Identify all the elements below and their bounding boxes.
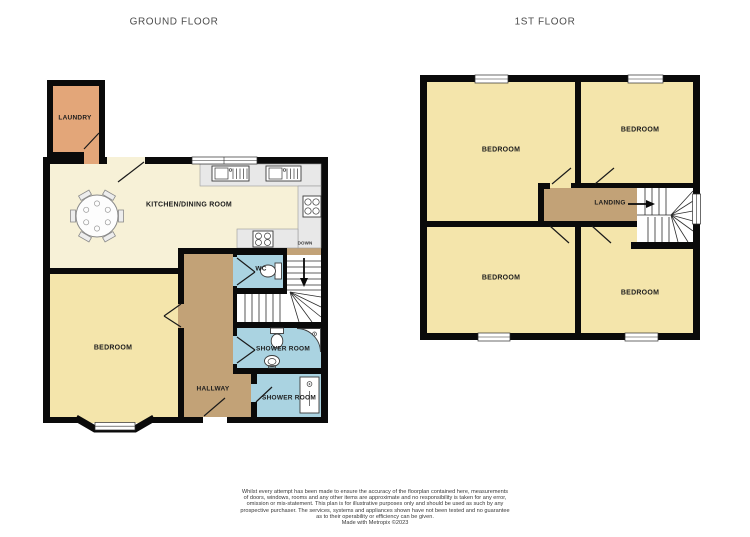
sink-icon — [212, 166, 249, 181]
disclaimer: Whilst every attempt has been made to en… — [0, 489, 750, 526]
laundry-door-gap — [84, 150, 99, 164]
shower2-door-gap — [251, 384, 257, 402]
first-floor-plan — [420, 75, 701, 341]
wc-door-gap — [233, 257, 237, 286]
floorplan-drawing — [0, 0, 750, 537]
label-down: DOWN — [298, 241, 313, 246]
hallway-floor-lower — [233, 374, 251, 417]
label-wc: WC — [255, 266, 266, 273]
title-ground-floor: GROUND FLOOR — [130, 17, 219, 28]
label-ff-bedroom-br: BEDROOM — [621, 290, 659, 297]
kitchen-window — [192, 157, 257, 164]
gf-stairs-top-strip — [287, 248, 321, 255]
label-kitchen-dining: KITCHEN/DINING ROOM — [146, 202, 232, 209]
shower1-door-gap — [233, 336, 237, 364]
front-door-gap — [203, 417, 227, 423]
floorplan-page: GROUND FLOOR 1ST FLOOR LAUNDRY KITCHEN/D… — [0, 0, 750, 537]
label-shower-room-1: SHOWER ROOM — [256, 346, 310, 353]
title-first-floor: 1ST FLOOR — [515, 17, 576, 28]
label-laundry: LAUNDRY — [58, 115, 91, 122]
disclaimer-credit: Made with Metropix ©2023 — [0, 520, 750, 526]
ground-floor-plan — [43, 80, 328, 430]
kitchen-entry-gap — [107, 157, 145, 164]
hallway-floor — [184, 254, 233, 417]
label-ff-bedroom-tr: BEDROOM — [621, 127, 659, 134]
label-ff-bedroom-bl: BEDROOM — [482, 275, 520, 282]
gf-bedroom-door-gap — [178, 304, 184, 328]
label-landing: LANDING — [594, 200, 625, 207]
label-ff-bedroom-tl: BEDROOM — [482, 147, 520, 154]
label-shower-room-2: SHOWER ROOM — [262, 395, 316, 402]
label-gf-bedroom: BEDROOM — [94, 345, 132, 352]
hob-icon — [303, 196, 321, 217]
label-hallway: HALLWAY — [197, 386, 230, 393]
bay-window — [76, 416, 154, 430]
hob-icon — [253, 231, 273, 247]
kitchen-floor-left — [50, 248, 178, 268]
sink-icon — [266, 166, 301, 181]
